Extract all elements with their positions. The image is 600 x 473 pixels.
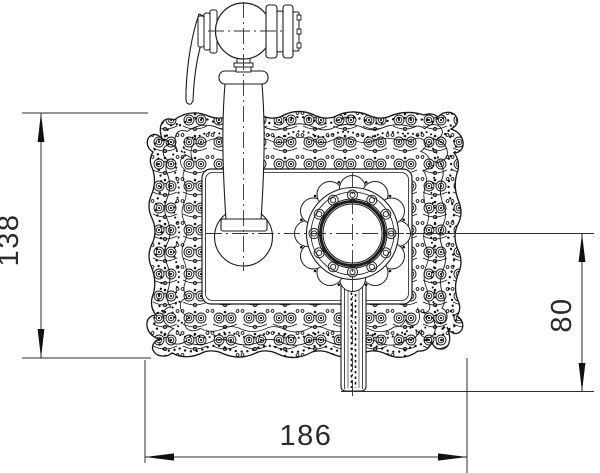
right-collar-ring-1 (266, 5, 277, 58)
arrow-up-icon (38, 113, 45, 142)
handle (341, 284, 366, 391)
left-collar-ring-2 (204, 13, 210, 50)
column-flange (221, 219, 267, 231)
arrow-left-icon (145, 453, 174, 460)
left-collar-ring-1 (198, 16, 204, 47)
right-collar-ring-2 (277, 11, 283, 52)
arrow-up-icon (579, 234, 586, 263)
drawing-canvas: 138 80 186 (0, 0, 600, 473)
arrow-right-icon (438, 453, 467, 460)
right-collar-ring-3 (283, 5, 293, 58)
dim-label-186: 186 (280, 420, 333, 452)
cap-screw-1 (297, 15, 301, 20)
arrow-down-icon (579, 363, 586, 392)
cap-screw-2 (297, 29, 301, 34)
dim-label-138: 138 (0, 214, 25, 267)
cap-screw-3 (297, 43, 301, 48)
arrow-down-icon (38, 329, 45, 358)
dimension-186: 186 (145, 358, 467, 473)
dimension-138: 138 (0, 113, 151, 358)
dim-label-80: 80 (546, 297, 578, 332)
